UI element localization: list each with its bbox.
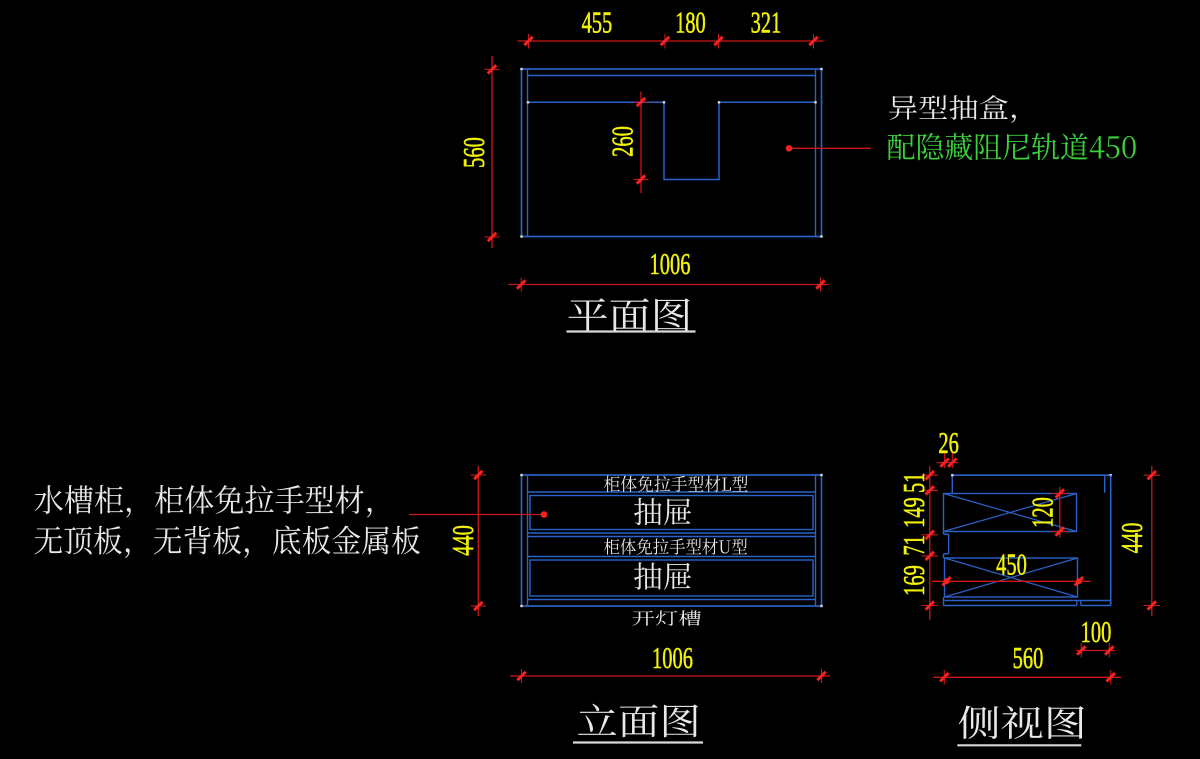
svg-text:560: 560 bbox=[1013, 641, 1044, 675]
svg-text:321: 321 bbox=[751, 5, 782, 39]
svg-text:149: 149 bbox=[897, 497, 931, 528]
svg-text:51: 51 bbox=[897, 473, 931, 493]
svg-text:440: 440 bbox=[1115, 523, 1149, 554]
svg-text:455: 455 bbox=[582, 5, 613, 39]
svg-text:71: 71 bbox=[897, 535, 931, 555]
svg-text:1006: 1006 bbox=[650, 247, 691, 281]
svg-text:180: 180 bbox=[675, 5, 706, 39]
svg-text:26: 26 bbox=[938, 426, 958, 460]
svg-text:1006: 1006 bbox=[652, 641, 693, 675]
svg-text:560: 560 bbox=[457, 137, 491, 168]
svg-text:260: 260 bbox=[605, 126, 639, 157]
svg-text:450: 450 bbox=[996, 547, 1027, 581]
svg-text:100: 100 bbox=[1081, 615, 1112, 649]
svg-text:440: 440 bbox=[446, 525, 480, 556]
svg-text:169: 169 bbox=[897, 565, 931, 596]
svg-text:120: 120 bbox=[1025, 497, 1059, 528]
